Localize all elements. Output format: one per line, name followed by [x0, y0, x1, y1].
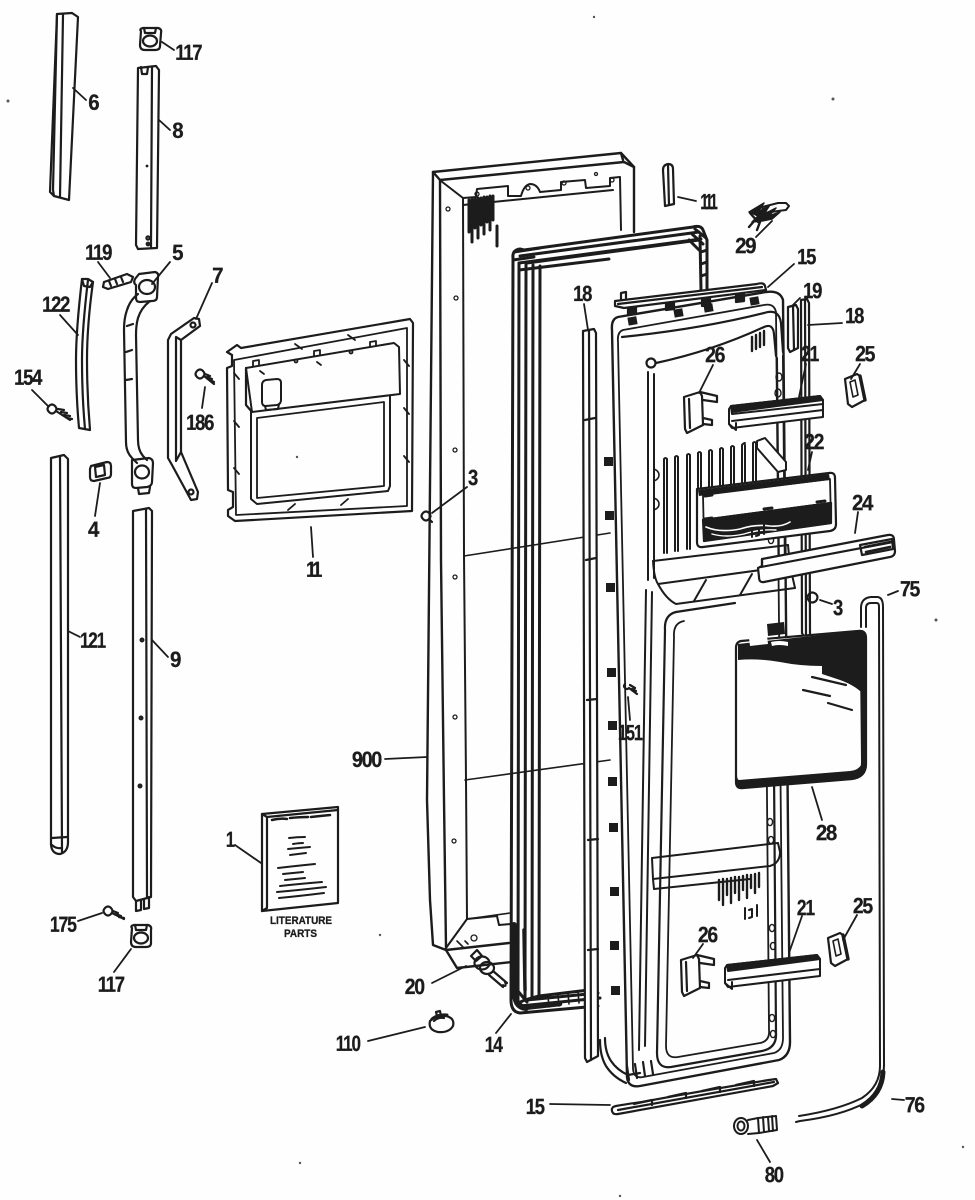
svg-text:151: 151: [618, 720, 643, 745]
svg-text:111: 111: [700, 189, 718, 214]
svg-text:15: 15: [526, 1094, 545, 1119]
svg-text:25: 25: [855, 341, 875, 366]
svg-text:5: 5: [172, 240, 183, 265]
svg-text:154: 154: [14, 365, 43, 390]
svg-text:18: 18: [573, 281, 592, 306]
svg-text:119: 119: [85, 240, 112, 265]
svg-text:8: 8: [172, 118, 183, 143]
svg-text:26: 26: [698, 922, 718, 947]
svg-text:15: 15: [797, 244, 816, 269]
svg-text:26: 26: [705, 342, 725, 367]
svg-text:175: 175: [50, 912, 77, 937]
svg-text:9: 9: [170, 647, 181, 672]
svg-text:117: 117: [98, 972, 125, 997]
svg-text:18: 18: [845, 303, 864, 328]
svg-text:21: 21: [801, 341, 819, 366]
svg-text:3: 3: [468, 465, 478, 490]
svg-text:122: 122: [42, 292, 70, 317]
svg-text:121: 121: [80, 628, 106, 653]
svg-text:110: 110: [336, 1031, 361, 1056]
svg-text:20: 20: [405, 974, 425, 999]
svg-text:900: 900: [352, 747, 382, 772]
svg-text:19: 19: [803, 278, 822, 303]
svg-text:29: 29: [735, 233, 756, 258]
svg-text:21: 21: [797, 895, 815, 920]
svg-text:28: 28: [816, 820, 837, 845]
svg-text:6: 6: [88, 90, 99, 115]
svg-text:1: 1: [226, 827, 235, 852]
svg-text:25: 25: [853, 893, 873, 918]
svg-text:14: 14: [485, 1032, 504, 1057]
svg-text:3: 3: [833, 595, 843, 620]
svg-text:PARTS: PARTS: [284, 928, 317, 940]
svg-text:LITERATURE: LITERATURE: [270, 915, 332, 927]
svg-text:76: 76: [905, 1092, 925, 1117]
svg-text:75: 75: [900, 576, 920, 601]
svg-text:24: 24: [852, 490, 874, 515]
svg-text:22: 22: [804, 429, 824, 454]
svg-text:117: 117: [175, 40, 202, 65]
svg-text:80: 80: [765, 1162, 784, 1187]
svg-text:186: 186: [186, 410, 214, 435]
svg-text:7: 7: [212, 263, 223, 288]
